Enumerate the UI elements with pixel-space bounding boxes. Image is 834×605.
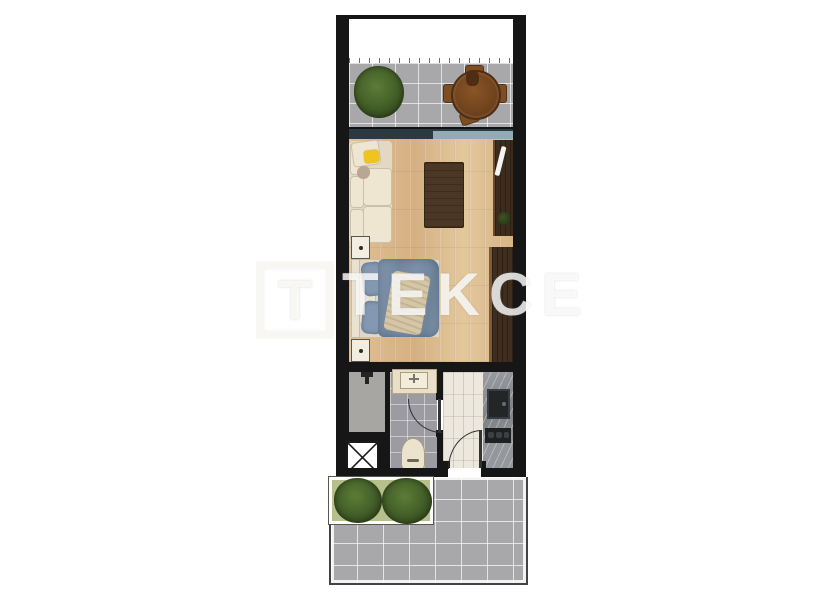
toilet-icon	[401, 438, 425, 470]
balcony-plant-icon	[354, 66, 404, 118]
entrance-door-leaf	[479, 430, 482, 468]
kitchen-sink-icon	[487, 389, 510, 419]
sliding-window	[349, 127, 513, 139]
table-vase-icon	[466, 70, 479, 86]
burner-icon	[504, 432, 509, 438]
wardrobe	[489, 247, 513, 362]
toilet-seam	[407, 459, 419, 462]
sink-drain-icon	[502, 402, 506, 406]
top-edge-line	[336, 15, 526, 19]
tv-plant-icon	[498, 212, 510, 225]
kitchen-counter	[483, 372, 513, 468]
coffee-table	[424, 162, 464, 228]
faucet-icon	[409, 378, 419, 380]
wall-left	[336, 15, 349, 478]
nightstand	[351, 339, 370, 362]
burner-icon	[488, 432, 494, 438]
wall-right	[513, 15, 526, 478]
nightstand	[351, 236, 370, 259]
terrace-plant-icon	[334, 478, 382, 523]
shower-fixture-icon	[365, 377, 369, 384]
watermark-logo-letter: T	[278, 272, 312, 328]
watermark-logo-box: T	[257, 262, 333, 338]
cooktop-icon	[485, 428, 511, 443]
window-glass	[433, 131, 513, 139]
burner-icon	[496, 432, 502, 438]
sofa-cushion	[350, 176, 364, 208]
bathroom-door-leaf	[438, 399, 441, 432]
floor-plan-canvas: T TEKCE	[0, 0, 834, 605]
yellow-pillow	[363, 149, 379, 163]
sofa-throw	[357, 166, 370, 179]
terrace-plant-icon	[382, 478, 432, 524]
